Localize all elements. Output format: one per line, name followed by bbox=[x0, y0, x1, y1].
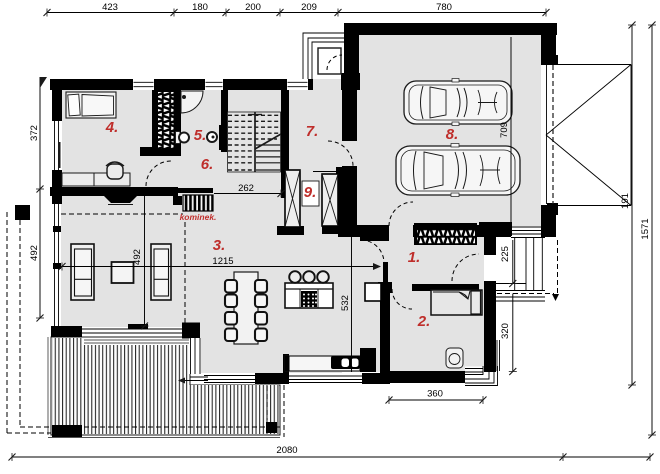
svg-text:1571: 1571 bbox=[640, 218, 651, 239]
svg-text:225: 225 bbox=[500, 246, 511, 262]
svg-text:1215: 1215 bbox=[212, 256, 233, 267]
svg-text:7.: 7. bbox=[306, 123, 319, 140]
svg-text:360: 360 bbox=[427, 389, 443, 400]
svg-text:180: 180 bbox=[192, 2, 208, 13]
svg-text:1.: 1. bbox=[408, 249, 421, 266]
svg-text:320: 320 bbox=[500, 323, 511, 339]
svg-text:5.: 5. bbox=[194, 127, 207, 144]
svg-text:191: 191 bbox=[620, 193, 631, 209]
svg-text:532: 532 bbox=[340, 295, 351, 311]
svg-text:423: 423 bbox=[102, 2, 118, 13]
svg-text:200: 200 bbox=[245, 2, 261, 13]
svg-text:262: 262 bbox=[238, 183, 254, 194]
svg-text:kominek.: kominek. bbox=[180, 212, 217, 222]
svg-text:4.: 4. bbox=[105, 119, 119, 136]
svg-text:209: 209 bbox=[301, 2, 317, 13]
svg-text:372: 372 bbox=[29, 125, 40, 141]
svg-text:492: 492 bbox=[29, 245, 40, 261]
svg-text:780: 780 bbox=[436, 2, 452, 13]
svg-text:2.: 2. bbox=[417, 313, 431, 330]
svg-text:9.: 9. bbox=[304, 184, 317, 201]
svg-text:6.: 6. bbox=[201, 156, 214, 173]
svg-text:3.: 3. bbox=[213, 237, 226, 254]
svg-text:8.: 8. bbox=[446, 126, 459, 143]
svg-text:2080: 2080 bbox=[276, 445, 297, 456]
svg-text:492: 492 bbox=[132, 249, 143, 265]
svg-text:709: 709 bbox=[499, 122, 510, 138]
